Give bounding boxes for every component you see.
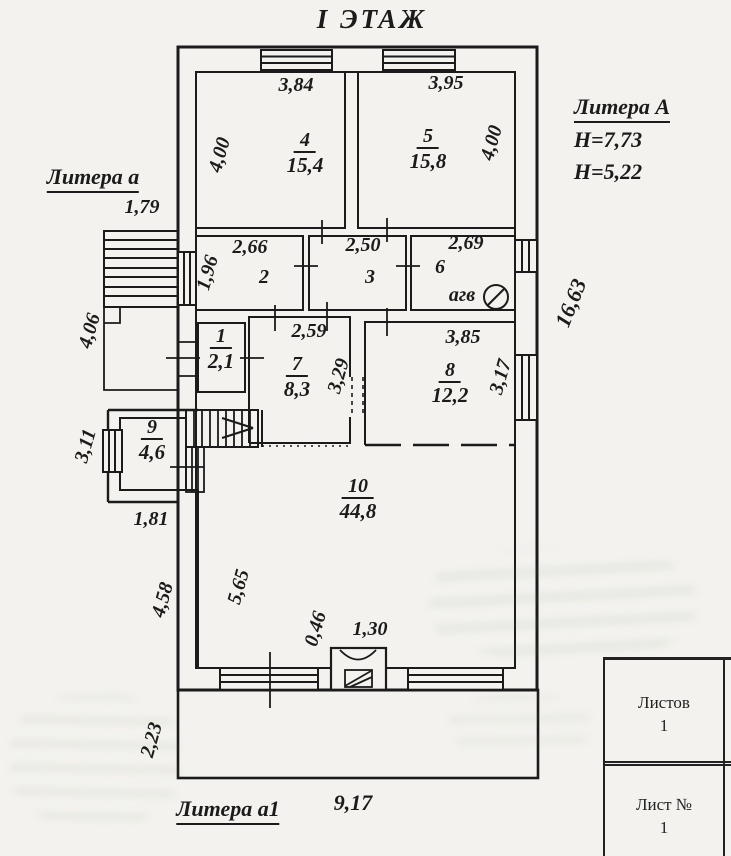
dim-2-66: 2,66 bbox=[233, 236, 268, 259]
title-block-row-divider bbox=[605, 764, 731, 766]
dim-3-85: 3,85 bbox=[446, 326, 481, 349]
room-6-label: 6 bbox=[435, 256, 445, 279]
sheet-count-label: Листов bbox=[605, 692, 723, 715]
floor-plan-page: I ЭТАЖ Литера А Н=7,73 Н=5,22 Литера а Л… bbox=[0, 0, 731, 856]
litera-a-main-label: Литера А bbox=[574, 94, 670, 123]
dim-2-59: 2,59 bbox=[292, 320, 327, 343]
sheet-number-cell: Лист № 1 bbox=[605, 794, 723, 840]
room-3-label: 3 bbox=[365, 266, 375, 289]
title-block-divider bbox=[723, 660, 725, 856]
external-staircase bbox=[104, 231, 178, 307]
litera-a-porch-label: Литера а bbox=[47, 164, 139, 193]
room-9-label: 9 4,6 bbox=[139, 417, 165, 465]
room-7-label: 7 8,3 bbox=[284, 354, 310, 402]
dim-2-69: 2,69 bbox=[449, 232, 484, 255]
dim-2-50: 2,50 bbox=[346, 234, 381, 257]
sheet-count-cell: Листов 1 bbox=[605, 692, 723, 738]
room-1-label: 1 2,1 bbox=[208, 326, 234, 374]
porch-outline bbox=[104, 307, 178, 390]
dim-3-95: 3,95 bbox=[429, 72, 464, 95]
agv-heater-label: агв bbox=[449, 284, 475, 307]
litera-a1-veranda-label: Литера а1 bbox=[176, 796, 279, 825]
title-block: Листов 1 Лист № 1 bbox=[603, 658, 731, 856]
dim-1-81: 1,81 bbox=[134, 508, 169, 531]
dim-3-84: 3,84 bbox=[279, 74, 314, 97]
dim-1-79: 1,79 bbox=[125, 196, 160, 219]
agv-heater-icon bbox=[484, 285, 508, 309]
sheet-number-value: 1 bbox=[605, 817, 723, 840]
room-2-label: 2 bbox=[259, 266, 269, 289]
room-10-label: 10 44,8 bbox=[340, 476, 377, 524]
veranda-outline bbox=[178, 690, 538, 778]
height-value-2: Н=5,22 bbox=[574, 159, 642, 185]
stove-symbol bbox=[331, 648, 386, 690]
sheet-count-value: 1 bbox=[605, 715, 723, 738]
dim-1-30: 1,30 bbox=[353, 618, 388, 641]
room-8-label: 8 12,2 bbox=[432, 360, 469, 408]
page-title: I ЭТАЖ bbox=[317, 4, 427, 35]
sheet-number-label: Лист № bbox=[605, 794, 723, 817]
room-5-label: 5 15,8 bbox=[410, 126, 447, 174]
room-4-label: 4 15,4 bbox=[287, 130, 324, 178]
height-value-1: Н=7,73 bbox=[574, 127, 642, 153]
dim-9-17: 9,17 bbox=[334, 790, 373, 816]
